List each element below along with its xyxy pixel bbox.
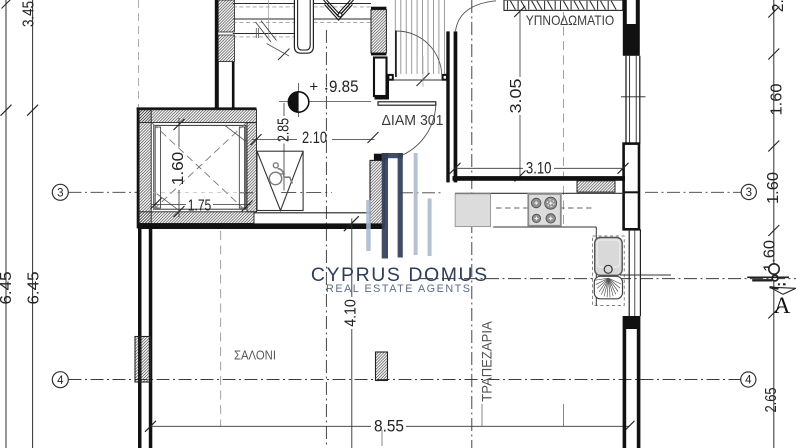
svg-text:3: 3 — [746, 187, 752, 199]
svg-text:1.60: 1.60 — [170, 151, 187, 185]
svg-text:3: 3 — [57, 187, 63, 199]
svg-text:3.05: 3.05 — [508, 79, 525, 114]
svg-text:2.10: 2.10 — [302, 129, 327, 147]
svg-text:8.55: 8.55 — [374, 418, 404, 436]
svg-text:1.60: 1.60 — [769, 83, 786, 115]
svg-text:2.85: 2.85 — [275, 118, 292, 142]
svg-text:2.65: 2.65 — [763, 388, 780, 413]
svg-text:ΣΑΛΟΝΙ: ΣΑΛΟΝΙ — [234, 348, 276, 362]
svg-text:1.75: 1.75 — [188, 198, 212, 215]
svg-text:ΤΡΑΠΕΖΑΡΙΑ: ΤΡΑΠΕΖΑΡΙΑ — [480, 320, 495, 401]
svg-text:9.85: 9.85 — [329, 78, 359, 96]
svg-text:2.10: 2.10 — [770, 0, 787, 12]
svg-text:A: A — [774, 293, 791, 318]
svg-text:4.10: 4.10 — [342, 299, 359, 327]
svg-text:REAL ESTATE AGENTS: REAL ESTATE AGENTS — [326, 283, 470, 295]
svg-text:6.45: 6.45 — [0, 272, 15, 305]
svg-text:3.10: 3.10 — [526, 160, 552, 178]
svg-text:ΥΠΝΟΔΩΜΑΤΙΟ: ΥΠΝΟΔΩΜΑΤΙΟ — [526, 13, 615, 28]
svg-text:1.60: 1.60 — [765, 172, 782, 204]
svg-text:+: + — [309, 79, 318, 96]
svg-text:4: 4 — [745, 375, 752, 387]
svg-text:6.45: 6.45 — [26, 272, 43, 305]
svg-text:3.45: 3.45 — [21, 1, 38, 27]
svg-text:4: 4 — [57, 375, 64, 387]
svg-text:ΔΙΑΜ 301: ΔΙΑΜ 301 — [382, 113, 444, 129]
